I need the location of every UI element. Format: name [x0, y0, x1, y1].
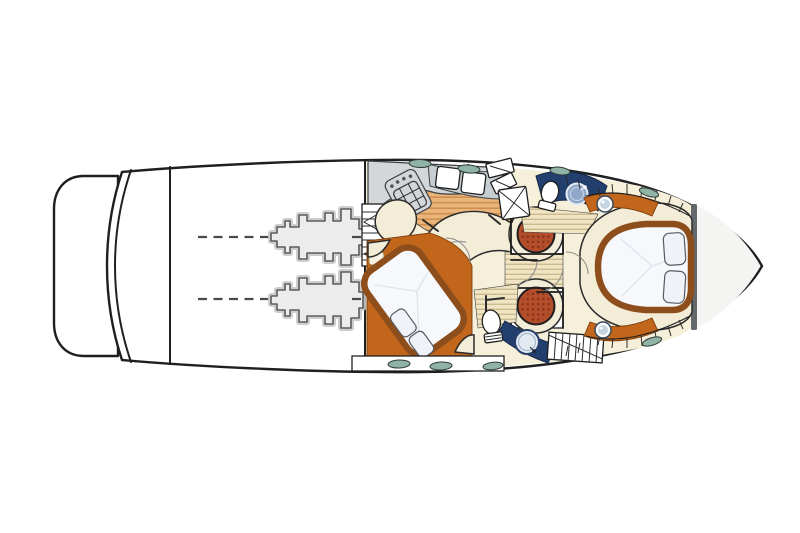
- sink-basin-left: [435, 166, 460, 190]
- aft-deck-hatch-band: [352, 356, 504, 371]
- bow: [691, 204, 760, 330]
- shower-box: [498, 186, 530, 220]
- porthole-bottom-icon: [595, 322, 611, 338]
- sink-basin-right: [461, 171, 486, 195]
- vanity-sink-icon: [515, 330, 539, 354]
- porthole-top-icon: [597, 196, 613, 212]
- deck-hatch-icon: [388, 360, 410, 369]
- berth-pillow: [663, 232, 686, 265]
- berth-pillow: [663, 270, 686, 303]
- dinette-table-bottom: [518, 288, 555, 325]
- deck-hatch-icon: [409, 159, 431, 168]
- anchor-locker-floor: [697, 206, 760, 328]
- vanity-sink-icon: [567, 184, 588, 205]
- yacht-deck-plan: [0, 0, 800, 533]
- hatch-band: [352, 356, 504, 371]
